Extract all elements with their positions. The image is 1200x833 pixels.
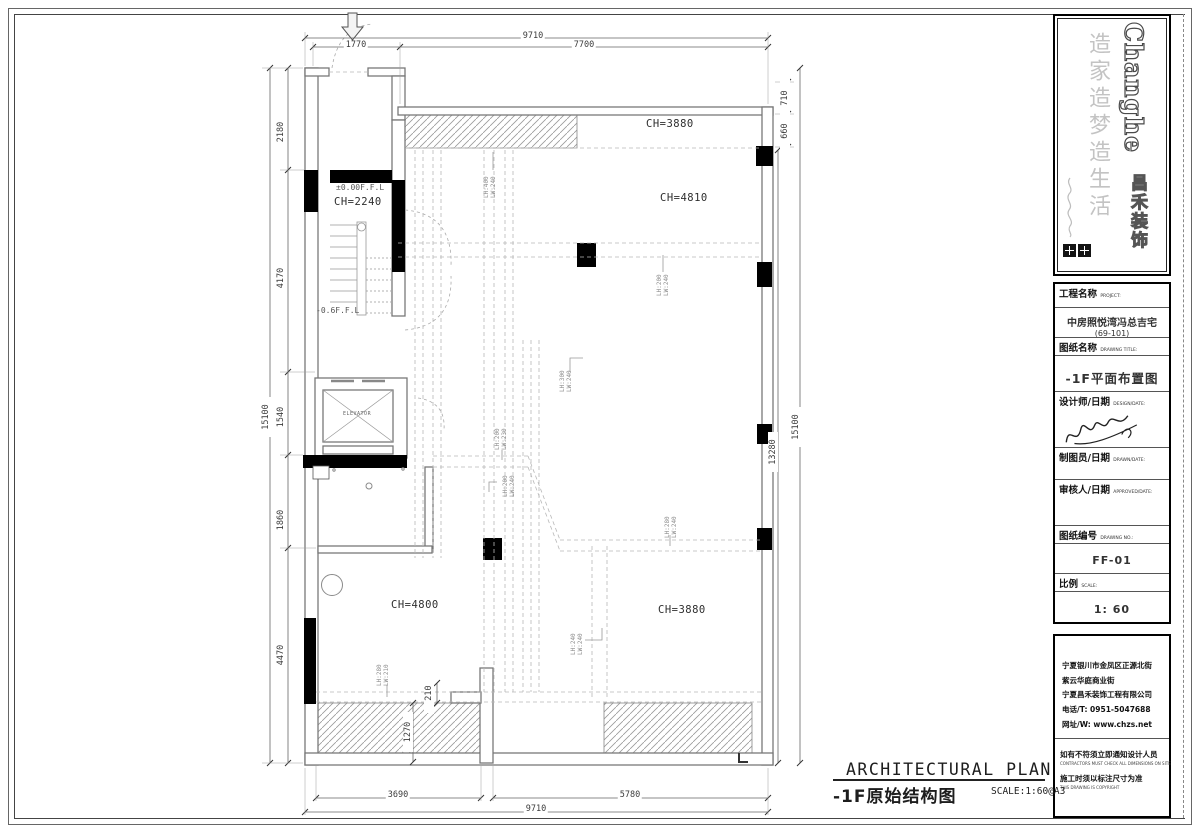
floorplan-drawing	[0, 0, 1200, 833]
beam-label: LH:300LW:240	[560, 370, 573, 392]
beam-lw: LW:240	[672, 516, 679, 538]
dim-label: 7700	[572, 41, 596, 50]
elevator-label: ELEVATOR	[343, 411, 371, 417]
designer-label-en: DESIGN/DATE:	[1113, 402, 1145, 407]
beam-lw: LW:230	[502, 428, 509, 450]
level-label-lower: -0.6F.F.L	[316, 306, 359, 315]
title-block-table: 工程名称 PROJECT: 中房照悦湾冯总吉宅 (69-101) 图纸名称 DR…	[1053, 282, 1171, 624]
dim-label: 15100	[261, 397, 271, 437]
dim-label: 5780	[618, 791, 642, 800]
address-block: 宁夏银川市金凤区正源北街 紫云华庭商业街 宁夏昌禾装饰工程有限公司 电话/T: …	[1053, 634, 1171, 818]
project-unit: (69-101)	[1059, 329, 1165, 338]
room-label-stair: CH=2240	[334, 196, 382, 208]
project-label-row: 工程名称 PROJECT:	[1055, 284, 1169, 308]
address-line1: 宁夏银川市金凤区正源北街	[1062, 660, 1152, 671]
seal-stamp-icon	[1078, 244, 1091, 257]
scale-value-row: 1: 60	[1055, 592, 1169, 626]
drawing-title-en: ARCHITECTURAL PLAN	[846, 760, 1052, 779]
beam-label: LH:280LW:210	[377, 664, 390, 686]
entrance-arrow-icon	[342, 13, 363, 40]
scale-note: SCALE:1:60@A3	[991, 786, 1065, 797]
drawing-title-row: -1F平面布置图	[1055, 356, 1169, 392]
project-label-en: PROJECT:	[1100, 294, 1120, 299]
scale-label-row: 比例 SCALE:	[1055, 574, 1169, 592]
slogan-calligraphy: 造家造梦造生活	[1081, 32, 1113, 221]
website: 网址/W: www.chzs.net	[1062, 719, 1152, 730]
dim-label: 4170	[276, 258, 286, 298]
approver-label: 审核人/日期	[1059, 485, 1110, 496]
designer-label-row: 设计师/日期 DESIGN/DATE:	[1055, 392, 1169, 408]
note1-en: CONTRACTORS MUST CHECK ALL DIMENSIONS ON…	[1060, 761, 1171, 766]
scale-value: 1: 60	[1059, 594, 1165, 616]
dim-label: 9710	[524, 805, 548, 814]
drawing-title: -1F平面布置图	[1059, 358, 1165, 387]
dim-label: 210	[424, 673, 434, 713]
level-label-entry: ±0.00F.F.L	[336, 183, 384, 192]
signature-calligraphy	[1063, 176, 1077, 238]
beam-lw: LW:240	[567, 370, 574, 392]
dim-label: 660	[780, 111, 790, 151]
drafter-label-en: DRAWN/DATE:	[1113, 458, 1145, 463]
drafter-value-row	[1055, 464, 1169, 480]
project-name: 中房照悦湾冯总吉宅	[1059, 310, 1165, 329]
drawing-no-label-row: 图纸编号 DRAWING NO.:	[1055, 526, 1169, 544]
dim-label: 1770	[344, 41, 368, 50]
drawing-title-label-en: DRAWING TITLE:	[1100, 348, 1137, 353]
drawing-no-label: 图纸编号	[1059, 531, 1097, 542]
dim-label: 15100	[791, 407, 801, 447]
designer-signature	[1057, 408, 1156, 448]
room-label-right: CH=3880	[658, 604, 706, 616]
project-label: 工程名称	[1059, 289, 1097, 300]
seal-stamp-icon	[1063, 244, 1076, 257]
drawing-no: FF-01	[1059, 546, 1165, 567]
divider	[1055, 738, 1169, 739]
designer-signature-row	[1055, 408, 1169, 448]
dim-label: 4470	[276, 635, 286, 675]
drawing-no-label-en: DRAWING NO.:	[1100, 536, 1133, 541]
stairs	[330, 222, 391, 315]
drawing-title-cn: -1F原始结构图	[833, 782, 957, 807]
beam-lw: LW:240	[578, 633, 585, 655]
dim-label: 3690	[386, 791, 410, 800]
drawing-title-label: 图纸名称	[1059, 343, 1097, 354]
beam-label: LH:200LW:240	[503, 475, 516, 497]
drafter-label-row: 制图员/日期 DRAWN/DATE:	[1055, 448, 1169, 464]
address-line2: 紫云华庭商业街	[1062, 675, 1115, 686]
dim-label: 13280	[768, 432, 778, 472]
dim-label: 1540	[276, 397, 286, 437]
dim-label: 2180	[276, 112, 286, 152]
approver-label-en: APPROVED/DATE:	[1113, 490, 1152, 495]
note2-en: THIS DRAWING IS COPYRIGHT	[1060, 785, 1119, 790]
room-label-main: CH=4810	[660, 192, 708, 204]
designer-label: 设计师/日期	[1059, 397, 1110, 408]
dim-label: 1270	[403, 712, 413, 752]
beam-label: LH:200LW:240	[657, 274, 670, 296]
brand-logo: Changhe	[1119, 22, 1148, 153]
note1: 如有不符须立即通知设计人员	[1060, 749, 1158, 760]
dim-label: 1860	[276, 500, 286, 540]
drafter-label: 制图员/日期	[1059, 453, 1110, 464]
room-label-top: CH=3880	[646, 118, 694, 130]
approver-value-row	[1055, 498, 1169, 526]
scale-label: 比例	[1059, 579, 1078, 590]
door-notch	[313, 466, 329, 479]
beam-lw: LW:210	[384, 664, 391, 686]
brand-name-cn: 昌禾装饰	[1125, 174, 1150, 250]
scale-label-en: SCALE:	[1081, 584, 1097, 589]
room-label-left: CH=4800	[391, 599, 439, 611]
beam-lw: LW:240	[510, 475, 517, 497]
beam-label: LH:280LW:240	[665, 516, 678, 538]
note2: 施工时须以标注尺寸为准	[1060, 773, 1143, 784]
phone: 电话/T: 0951-5047688	[1062, 704, 1151, 715]
company-name: 宁夏昌禾装饰工程有限公司	[1062, 689, 1152, 700]
beam-lw: LW:240	[491, 176, 498, 198]
logo-block: Changhe 昌禾装饰 造家造梦造生活	[1053, 14, 1171, 276]
beam-lw: LW:240	[664, 274, 671, 296]
title-underline	[833, 779, 1045, 781]
beam-label: LH:400LW:240	[484, 176, 497, 198]
beam-label: LH:200LW:230	[495, 428, 508, 450]
drawing-no-row: FF-01	[1055, 544, 1169, 574]
drawing-sheet: CH=3880 CH=4810 ±0.00F.F.L CH=2240 -0.6F…	[0, 0, 1200, 833]
dim-label: 9710	[521, 32, 545, 41]
beam-label: LH:240LW:240	[571, 633, 584, 655]
approver-label-row: 审核人/日期 APPROVED/DATE:	[1055, 480, 1169, 498]
beam-leaders	[387, 152, 670, 697]
project-value-row: 中房照悦湾冯总吉宅 (69-101)	[1055, 308, 1169, 338]
drawing-title-label-row: 图纸名称 DRAWING TITLE:	[1055, 338, 1169, 356]
